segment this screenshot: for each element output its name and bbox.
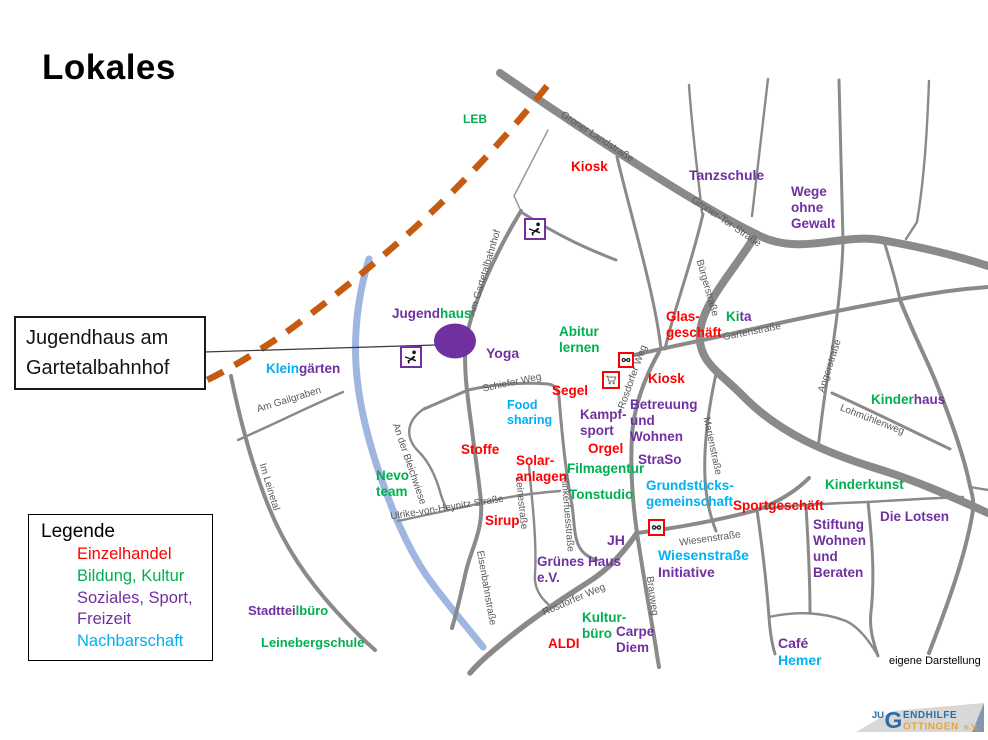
place-label-carpe-diem: CarpeDiem xyxy=(616,624,654,656)
jugendhaus-callout: Jugendhaus am Gartetalbahnhof xyxy=(14,316,206,390)
road-buergerstrasse xyxy=(700,234,988,513)
logo-text-g: G xyxy=(885,707,903,733)
logo-text-oettingen: ÖTTINGEN xyxy=(903,720,959,733)
place-label-sportgeschaeft: Sportgeschäft xyxy=(733,498,824,514)
place-label-sirup: Sirup xyxy=(485,513,520,529)
place-label-segel: Segel xyxy=(552,383,588,399)
jugendhaus-marker xyxy=(434,324,476,359)
place-label-kinderhaus: Kinderhaus xyxy=(871,392,945,408)
road-lilienthalstrasse xyxy=(868,502,878,656)
callout-line1: Jugendhaus am xyxy=(26,323,204,353)
place-label-straso: StraSo xyxy=(638,452,682,468)
logo-text-ju: JU xyxy=(872,710,884,721)
road-nord-3 xyxy=(752,79,768,216)
logo-text-ev: e.V. xyxy=(964,722,978,732)
road-zum-cafe-hemer xyxy=(757,510,775,654)
place-label-tonstudio: Tonstudio xyxy=(569,487,633,503)
map-slide: Lokales Jugendhaus am Gartetalbahnhof Le… xyxy=(0,0,988,740)
place-label-kiosk-grone: Kiosk xyxy=(571,159,608,175)
place-label-kleingaerten: Kleingärten xyxy=(266,361,340,377)
place-label-kiosk-rosdorfer: Kiosk xyxy=(648,371,685,387)
legend-item-soziales-sport-freizeit: Soziales, Sport, Freizeit xyxy=(77,588,212,632)
legend-title: Legende xyxy=(41,521,212,543)
place-label-nevo-team: Nevoteam xyxy=(376,468,409,500)
legend: Legende Einzelhandel Bildung, Kultur Soz… xyxy=(28,514,213,661)
place-label-food-sharing: Foodsharing xyxy=(507,398,552,428)
place-label-leb: LEB xyxy=(463,112,487,126)
place-label-jugendhaus: Jugendhaus xyxy=(392,306,472,322)
place-label-leinebergschule: Leinebergschule xyxy=(261,635,364,650)
place-label-solaranlagen: Solar-anlagen xyxy=(516,453,567,485)
place-label-kampfsport: Kampf-sport xyxy=(580,407,627,439)
place-label-cafe-hemer: CaféHemer xyxy=(778,635,822,668)
road-nord-1 xyxy=(839,80,843,240)
place-label-die-lotsen: Die Lotsen xyxy=(880,509,949,525)
place-label-glasgeschaeft: Glas-geschäft xyxy=(666,309,722,341)
place-label-tanzschule: Tanzschule xyxy=(689,167,764,184)
place-label-kita: Kita xyxy=(726,309,752,325)
jugendhilfe-logo: JU G ENDHILFE ÖTTINGEN e.V. xyxy=(854,700,986,738)
place-label-jh: JH xyxy=(607,532,625,549)
callout-line2: Gartetalbahnhof xyxy=(26,353,204,383)
place-label-wege-ohne-gewalt: WegeohneGewalt xyxy=(791,184,835,232)
dancer-icon xyxy=(400,346,422,368)
place-label-gruenes-haus: Grünes Hause.V. xyxy=(537,554,621,586)
place-label-grundstuecksgemeinschaft: Grundstücks-gemeinschaft xyxy=(646,478,734,510)
place-label-orgel: Orgel xyxy=(588,441,623,457)
road-cramerstrasse xyxy=(806,506,810,612)
place-label-betreuung-und-wohnen: BetreuungundWohnen xyxy=(630,397,698,445)
glasses-icon xyxy=(618,352,634,368)
place-label-aldi: ALDI xyxy=(548,636,580,652)
legend-item-bildung-kultur: Bildung, Kultur xyxy=(77,566,212,588)
logo-text-endhilfe: ENDHILFE xyxy=(903,710,957,721)
boundary-line xyxy=(514,130,548,211)
place-label-wiesenstrasse-initiative: WiesenstraßeInitiative xyxy=(658,547,749,580)
page-title: Lokales xyxy=(42,48,176,88)
place-label-yoga: Yoga xyxy=(486,345,519,362)
cart-icon xyxy=(602,371,620,389)
attribution: eigene Darstellung xyxy=(889,655,981,667)
place-label-stiftung-wohnen-und-beraten: StiftungWohnenundBeraten xyxy=(813,517,866,581)
legend-item-nachbarschaft: Nachbarschaft xyxy=(77,631,212,653)
place-label-stadtteilbuero: Stadtteilbüro xyxy=(248,603,328,618)
glasses-icon xyxy=(648,519,665,536)
place-label-stoffe: Stoffe xyxy=(461,442,499,458)
place-label-kinderkunst: Kinderkunst xyxy=(825,477,904,493)
place-label-filmagentur: Filmagentur xyxy=(567,461,644,477)
road-nord-4 xyxy=(906,81,929,239)
legend-item-einzelhandel: Einzelhandel xyxy=(77,544,212,566)
place-label-abitur-lernen: Abiturlernen xyxy=(559,324,600,356)
road-abzweig-nordost xyxy=(884,241,900,300)
dancer-icon xyxy=(524,218,546,240)
road-zum-glasgeschaeft-west xyxy=(617,157,661,349)
